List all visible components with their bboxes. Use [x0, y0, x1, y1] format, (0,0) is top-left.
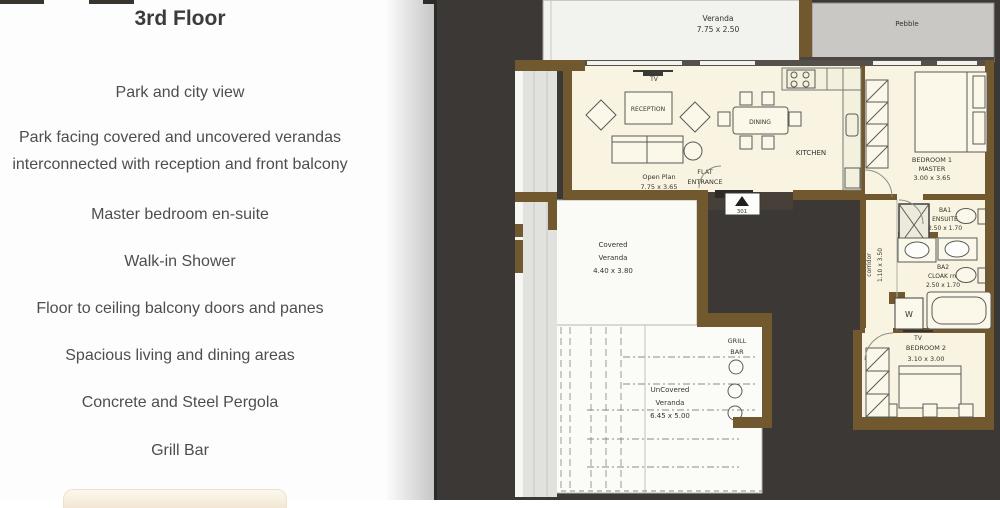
corridor-dims: 1.10 x 3.50 [877, 248, 884, 282]
bathtub-icon [927, 292, 991, 329]
bedroom1-label-1: BEDROOM 1 [912, 156, 952, 164]
open-plan-label: Open Plan [642, 173, 675, 181]
feature-item: Spacious living and dining areas [0, 342, 360, 369]
floor-plan: Veranda 7.75 x 2.50 Pebble Covered Veran… [437, 0, 1000, 500]
feature-item: Concrete and Steel Pergola [0, 389, 360, 416]
cropped-content-top-mid [89, 0, 134, 4]
cropped-button-top[interactable] [63, 489, 287, 508]
covered-veranda-label-1: Covered [598, 241, 627, 249]
bed-icon [899, 366, 961, 408]
feature-item: Grill Bar [0, 437, 360, 464]
pebble-label: Pebble [895, 20, 918, 28]
covered-veranda-dims: 4.40 x 3.80 [593, 267, 633, 275]
ba2-label-1: BA2 [937, 264, 949, 271]
cropped-content-top-left [0, 0, 44, 4]
ba1-label-1: BA1 [939, 207, 951, 214]
tv-label: TV [649, 76, 659, 83]
feature-item: Park facing covered and uncovered verand… [0, 124, 360, 178]
veranda-top-label: Veranda [703, 14, 734, 23]
reception-label: RECEPTION [631, 106, 665, 113]
grill-bar-label-2: BAR [730, 348, 744, 356]
washer-label: W [905, 310, 913, 319]
covered-veranda-label-2: Veranda [599, 254, 628, 262]
panel-shadow [385, 0, 435, 500]
grill-bar-label-1: GRILL [728, 337, 747, 345]
dining-label: DINING [749, 119, 771, 126]
wardrobe-icon [866, 80, 888, 168]
uncovered-veranda-label-1: UnCovered [651, 386, 690, 394]
uncovered-veranda-dims: 6.45 x 5.00 [650, 412, 690, 420]
page-title: 3rd Floor [0, 7, 360, 31]
feature-panel: 3rd Floor Park and city view Park facing… [0, 0, 437, 500]
kitchen-label: KITCHEN [796, 149, 826, 157]
bedroom2-label: BEDROOM 2 [906, 344, 946, 352]
feature-item: Floor to ceiling balcony doors and panes [0, 295, 360, 322]
bedroom1-label-2: MASTER [919, 165, 946, 173]
open-plan-dims: 7.75 x 3.65 [641, 183, 678, 191]
ba1-dims: 2.50 x 1.70 [928, 225, 962, 232]
veranda-top: Veranda 7.75 x 2.50 [543, 0, 800, 63]
wardrobe-icon [866, 348, 889, 417]
front-balcony [515, 66, 557, 497]
page: 3rd Floor Park and city view Park facing… [0, 0, 1000, 500]
bedroom1-dims: 3.00 x 3.65 [914, 174, 951, 182]
ba2-label-2: CLOAK rm [928, 273, 958, 280]
pebble-area: Pebble [799, 0, 994, 66]
veranda-top-dims: 7.75 x 2.50 [697, 25, 740, 34]
feature-item: Walk-in Shower [0, 248, 360, 275]
bedroom2-tv-label: TV [913, 335, 923, 342]
entrance-label-2: ENTRANCE [687, 178, 722, 186]
feature-item: Master bedroom en-suite [0, 201, 360, 228]
ba2-dims: 2.50 x 1.70 [926, 282, 960, 289]
corridor-label: corridor [866, 253, 873, 277]
unit-number: 301 [737, 209, 748, 215]
bedroom2-dims: 3.10 x 3.00 [908, 355, 945, 363]
feature-item: Park and city view [0, 79, 360, 106]
uncovered-veranda-label-2: Veranda [656, 399, 685, 407]
side-table-icon [684, 142, 702, 160]
ba1-label-2: ENSUITE [932, 216, 958, 223]
